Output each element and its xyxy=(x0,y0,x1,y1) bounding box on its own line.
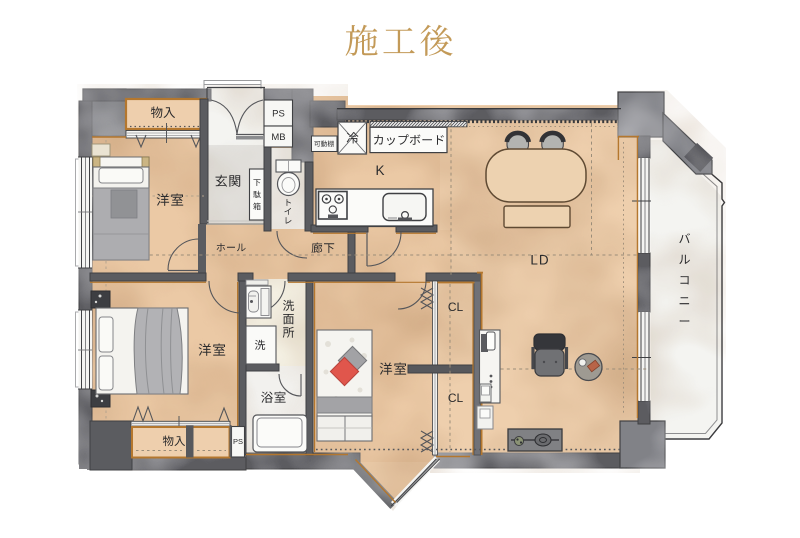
svg-text:K: K xyxy=(375,163,384,178)
svg-text:CL: CL xyxy=(448,391,464,405)
svg-text:PS: PS xyxy=(233,437,243,446)
svg-text:CL: CL xyxy=(448,300,464,314)
svg-text:MB: MB xyxy=(271,132,285,143)
svg-text:PS: PS xyxy=(272,109,285,120)
svg-text:LD: LD xyxy=(530,253,549,268)
